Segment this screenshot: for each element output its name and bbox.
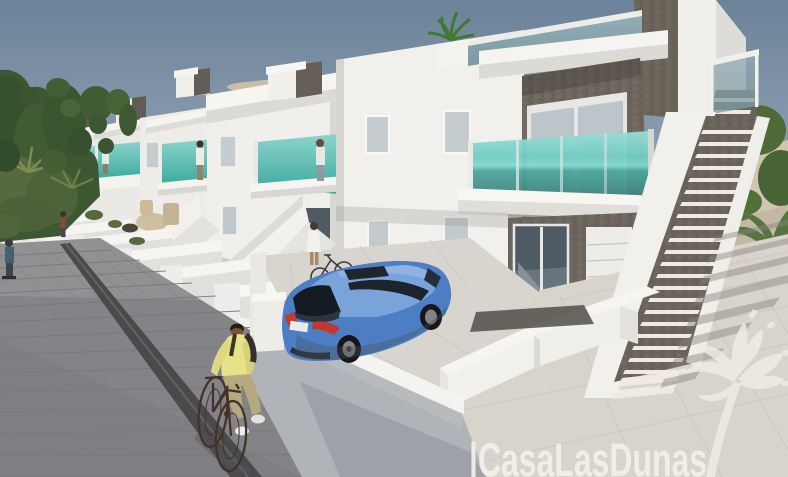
svg-text:|CasaLasDunas: |CasaLasDunas xyxy=(469,434,707,477)
